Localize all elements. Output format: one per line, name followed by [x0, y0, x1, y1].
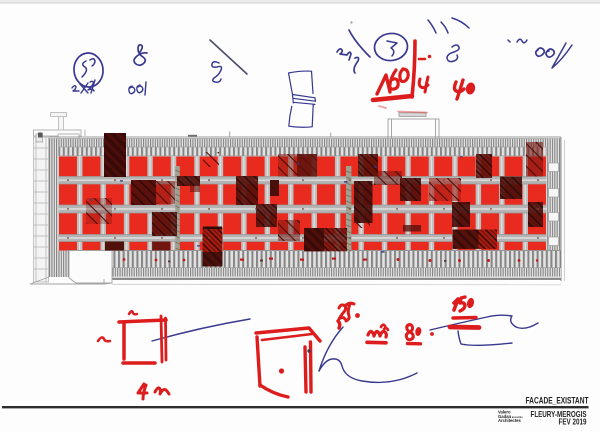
- svg-text:FEV 2019: FEV 2019: [559, 417, 587, 426]
- svg-text:FACADE_EXISTANT: FACADE_EXISTANT: [526, 396, 589, 406]
- svg-text:Architectes: Architectes: [498, 418, 521, 423]
